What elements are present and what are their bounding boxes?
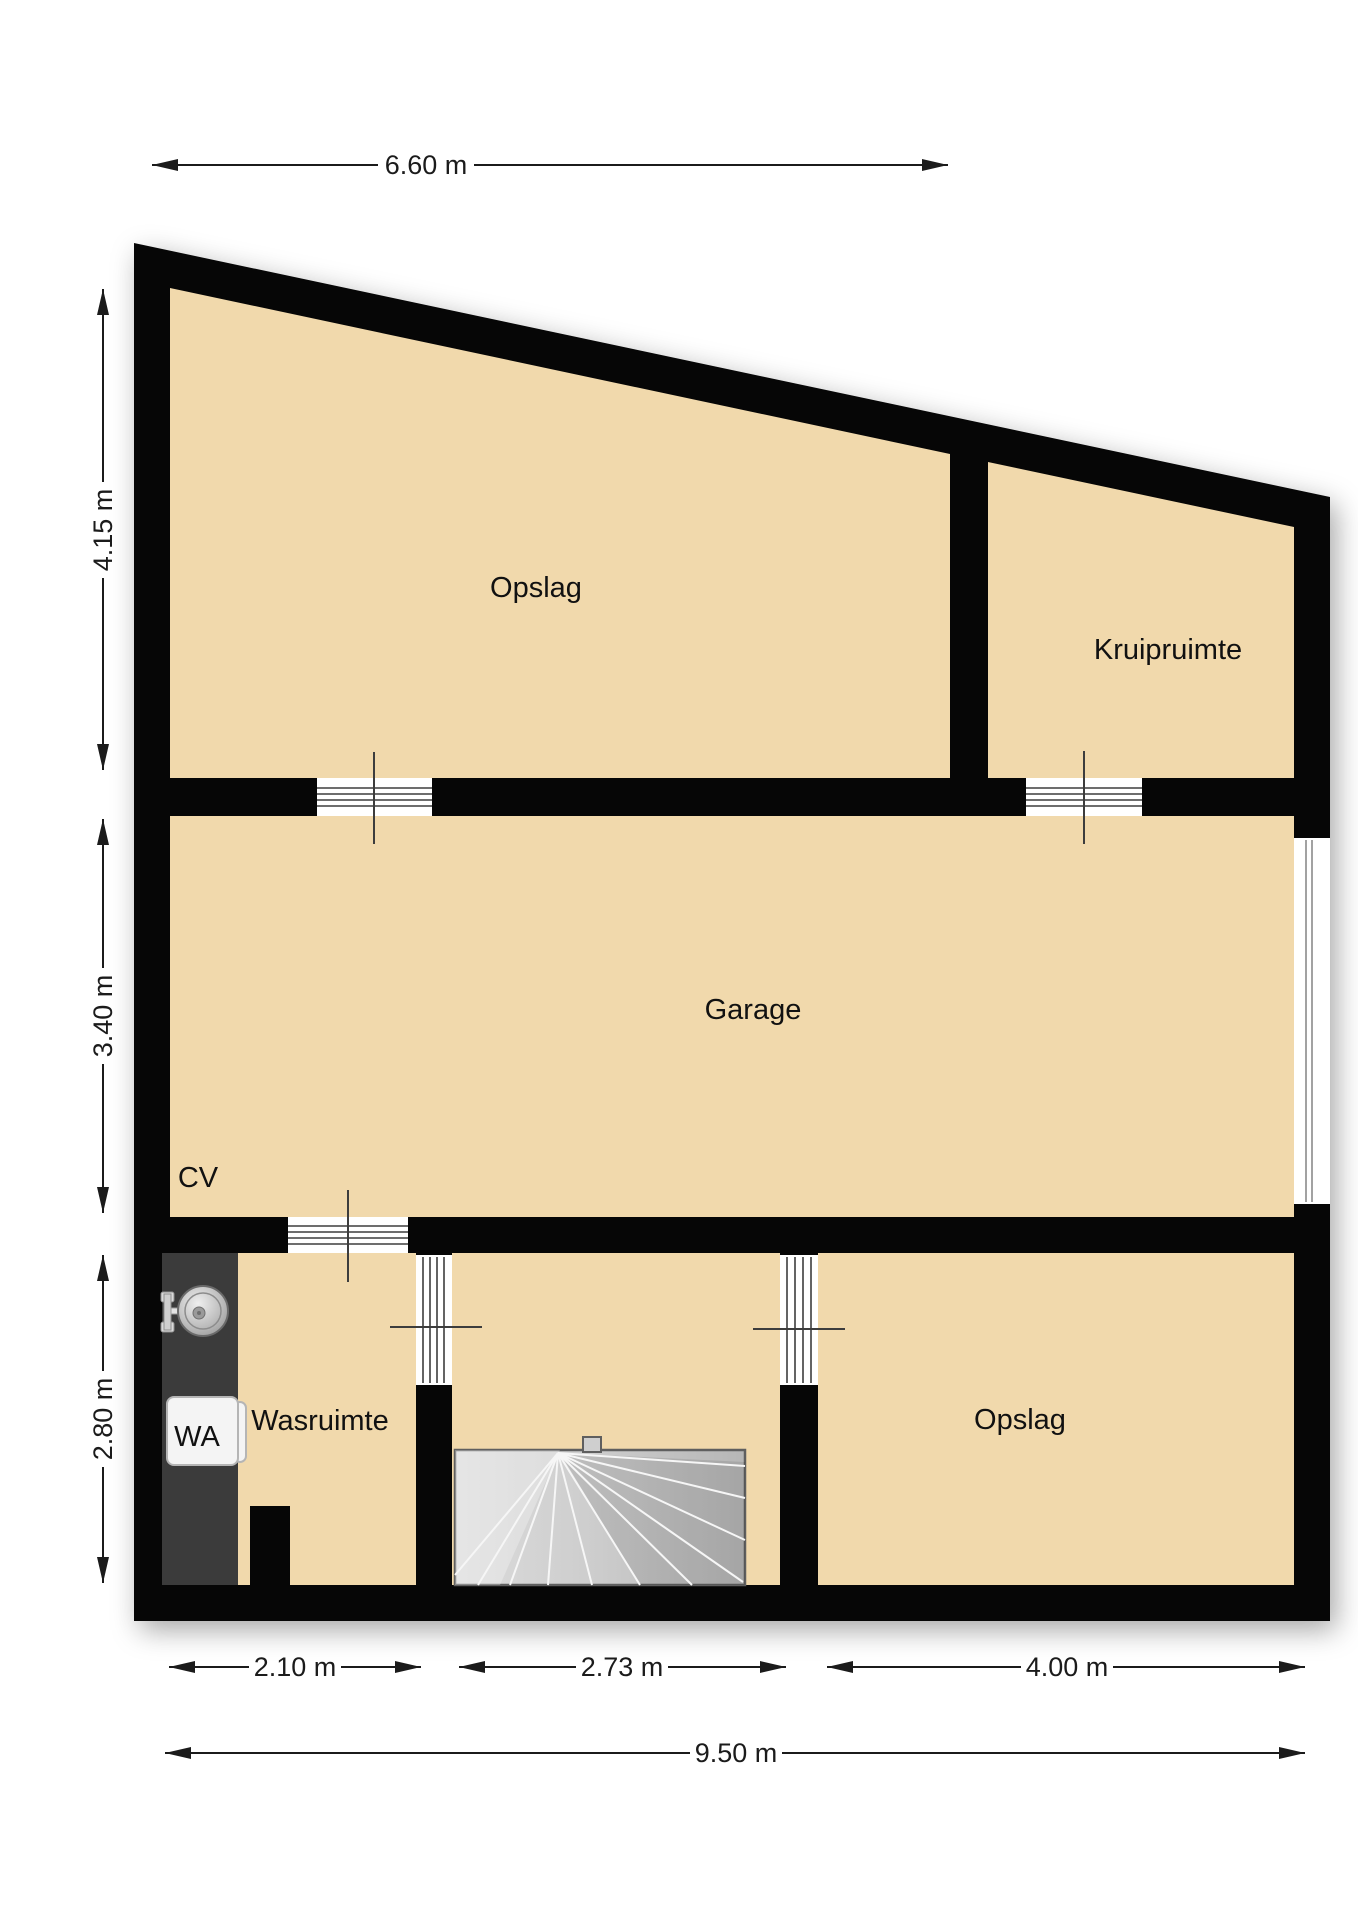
dimension-left-upper-label: 4.15 m <box>88 489 118 572</box>
dimension-bottom-left-label: 2.10 m <box>254 1652 337 1682</box>
sink-icon <box>161 1286 228 1336</box>
dimension-left-lower: 2.80 m <box>88 1255 118 1583</box>
room-label-opslag-bottom: Opslag <box>974 1404 1066 1436</box>
dimension-left-upper: 4.15 m <box>88 289 118 770</box>
dimension-bottom-middle: 2.73 m <box>459 1652 786 1682</box>
dimension-top: 6.60 m <box>152 150 948 180</box>
stair-newel-post <box>583 1437 601 1452</box>
floorplan-canvas: WA Opslag Kruipruimte Gar <box>0 0 1358 1920</box>
staircase <box>455 1437 745 1585</box>
stub-wall <box>250 1506 290 1585</box>
room-label-kruipruimte: Kruipruimte <box>1094 634 1242 666</box>
dimension-left-middle: 3.40 m <box>88 819 118 1213</box>
room-label-garage: Garage <box>705 994 802 1026</box>
dimension-bottom-total: 9.50 m <box>165 1738 1305 1768</box>
dimension-bottom-right: 4.00 m <box>827 1652 1305 1682</box>
washing-machine-icon: WA <box>167 1397 246 1465</box>
dimension-left-lower-label: 2.80 m <box>88 1378 118 1461</box>
dimension-bottom-right-label: 4.00 m <box>1026 1652 1109 1682</box>
washing-machine-label: WA <box>174 1421 220 1453</box>
room-label-opslag-top: Opslag <box>490 572 582 604</box>
room-label-cv: CV <box>178 1162 219 1194</box>
dimension-bottom-total-label: 9.50 m <box>695 1738 778 1768</box>
garage-window <box>1294 838 1330 1204</box>
dimension-top-label: 6.60 m <box>385 150 468 180</box>
room-label-wasruimte: Wasruimte <box>251 1405 389 1437</box>
dimension-bottom-middle-label: 2.73 m <box>581 1652 664 1682</box>
dimension-left-middle-label: 3.40 m <box>88 975 118 1058</box>
dimension-bottom-left: 2.10 m <box>169 1652 421 1682</box>
